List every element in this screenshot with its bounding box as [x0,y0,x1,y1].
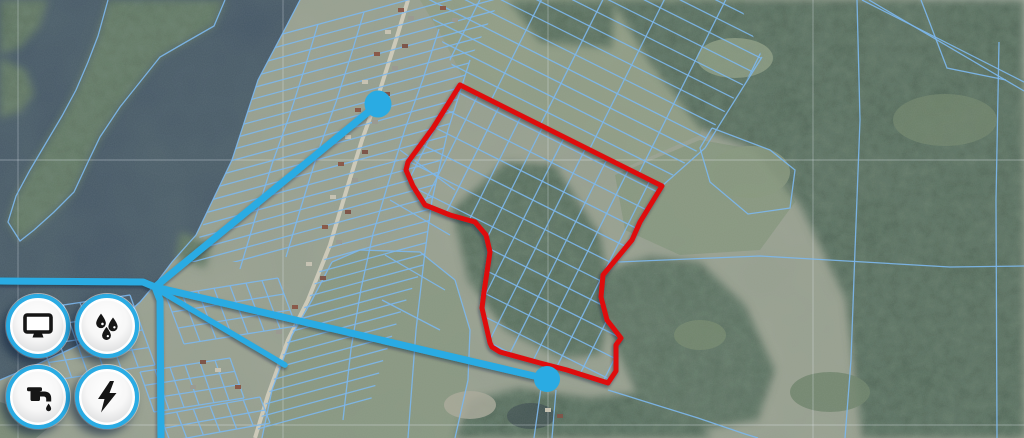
lightning-layer-button[interactable] [75,365,139,429]
building [190,385,196,389]
faucet-icon [20,379,56,415]
building [398,8,404,12]
building [557,414,563,418]
map-viewport [0,0,1024,438]
building [320,276,326,280]
building [306,262,312,266]
building [200,360,206,364]
faucet-layer-button[interactable] [6,365,70,429]
building [322,225,328,229]
building [374,52,380,56]
building [402,44,408,48]
building [545,408,551,412]
building [336,240,342,244]
building [372,120,378,124]
building [345,210,351,214]
building [292,305,298,309]
building [408,16,414,20]
monitor-icon [20,308,56,344]
building [215,368,221,372]
building [276,330,282,334]
layer-toolbar [6,294,141,433]
building [362,80,368,84]
lightning-icon [89,379,125,415]
building [392,66,398,70]
utility-node[interactable] [534,366,560,392]
water-drops-layer-button[interactable] [75,294,139,358]
building [385,30,391,34]
building [235,385,241,389]
building [452,18,458,22]
utility-node[interactable] [365,91,392,118]
building [352,178,358,182]
building [338,162,344,166]
monitor-layer-button[interactable] [6,294,70,358]
building [440,6,446,10]
map-canvas[interactable] [0,0,1024,438]
water-drops-icon [89,308,125,344]
building [362,150,368,154]
building [355,108,361,112]
building [330,195,336,199]
building [345,135,351,139]
